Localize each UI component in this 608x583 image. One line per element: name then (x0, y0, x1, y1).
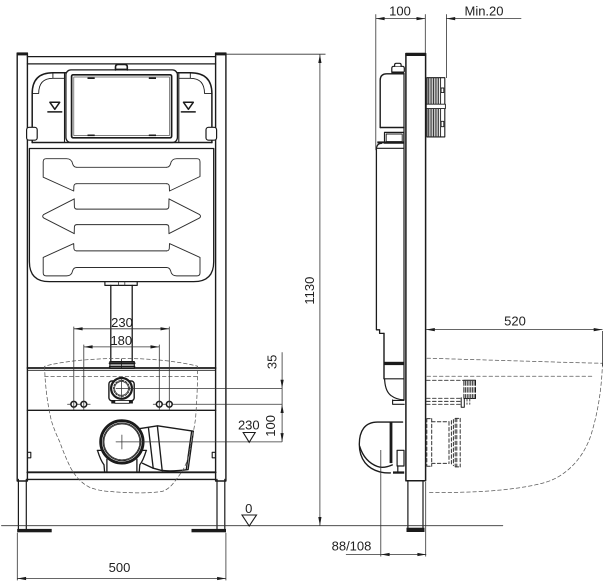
svg-text:100: 100 (389, 3, 411, 18)
svg-text:Min.20: Min.20 (464, 3, 503, 18)
svg-text:500: 500 (109, 560, 131, 575)
svg-text:230: 230 (111, 315, 133, 330)
svg-text:100: 100 (263, 415, 278, 437)
svg-text:35: 35 (264, 355, 279, 369)
svg-text:1130: 1130 (302, 277, 317, 305)
svg-text:520: 520 (504, 313, 526, 328)
svg-text:180: 180 (110, 333, 132, 348)
svg-text:0: 0 (245, 501, 252, 516)
svg-text:88/108: 88/108 (332, 538, 372, 553)
svg-text:230: 230 (238, 418, 260, 433)
